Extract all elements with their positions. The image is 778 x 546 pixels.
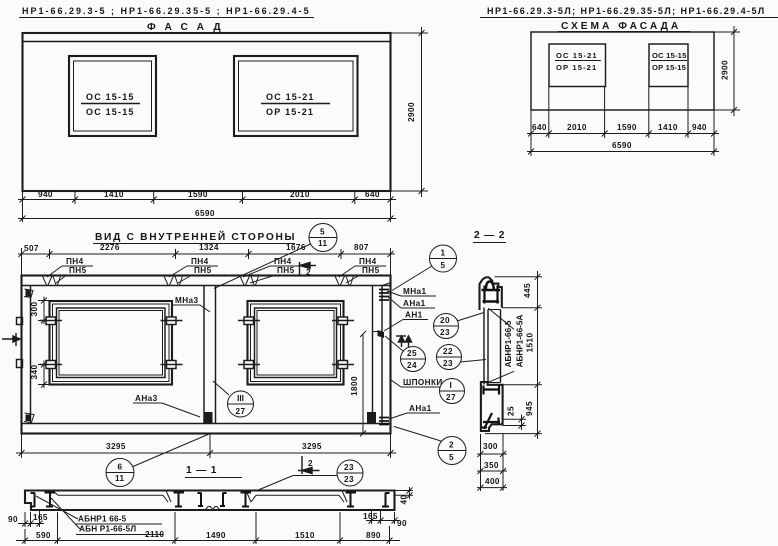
svg-text:640: 640 xyxy=(365,190,380,199)
svg-text:11: 11 xyxy=(318,239,328,248)
svg-text:МНа1: МНа1 xyxy=(403,287,426,296)
svg-text:1590: 1590 xyxy=(617,123,637,132)
svg-text:165: 165 xyxy=(33,513,48,522)
svg-text:ОС 15-15: ОС 15-15 xyxy=(86,92,135,102)
svg-text:945: 945 xyxy=(525,401,534,416)
svg-text:5: 5 xyxy=(441,261,446,270)
svg-text:23: 23 xyxy=(344,475,354,484)
svg-text:590: 590 xyxy=(36,531,51,540)
svg-text:400: 400 xyxy=(485,477,500,486)
svg-text:25: 25 xyxy=(507,406,516,416)
svg-text:НР1-66.29.3-5Л; НР1-66.29.35-5: НР1-66.29.3-5Л; НР1-66.29.35-5Л; НР1-66.… xyxy=(487,6,766,16)
svg-text:5: 5 xyxy=(320,228,325,237)
svg-text:АБНР1-66-5А: АБНР1-66-5А xyxy=(516,315,525,368)
svg-text:АНа3: АНа3 xyxy=(135,394,158,403)
svg-text:300: 300 xyxy=(30,302,39,317)
svg-text:25: 25 xyxy=(407,349,417,358)
svg-text:ФАСАД: ФАСАД xyxy=(147,22,230,33)
svg-text:АБНР1 66-5: АБНР1 66-5 xyxy=(78,515,127,524)
svg-text:24: 24 xyxy=(407,361,417,370)
svg-text:6590: 6590 xyxy=(612,141,632,150)
svg-text:ПН4: ПН4 xyxy=(191,257,209,266)
svg-text:2: 2 xyxy=(306,268,311,277)
svg-text:2: 2 xyxy=(449,441,454,450)
svg-text:ПН4: ПН4 xyxy=(359,257,377,266)
svg-text:1324: 1324 xyxy=(199,243,219,252)
svg-text:3295: 3295 xyxy=(302,442,322,451)
svg-text:1510: 1510 xyxy=(295,531,315,540)
svg-text:ПН5: ПН5 xyxy=(277,266,295,275)
svg-text:445: 445 xyxy=(523,283,532,298)
svg-text:1: 1 xyxy=(441,249,446,258)
svg-text:27: 27 xyxy=(446,393,456,402)
svg-text:2010: 2010 xyxy=(567,123,587,132)
svg-text:МНа3: МНа3 xyxy=(175,296,198,305)
svg-text:1410: 1410 xyxy=(658,123,678,132)
svg-text:ВИД С ВНУТРЕННЕЙ СТОРОНЫ: ВИД С ВНУТРЕННЕЙ СТОРОНЫ xyxy=(95,230,296,243)
svg-text:27: 27 xyxy=(236,407,246,416)
svg-text:940: 940 xyxy=(38,190,53,199)
svg-text:40: 40 xyxy=(400,495,409,505)
svg-text:22: 22 xyxy=(443,347,453,356)
svg-text:НР1-66.29.3-5 ; НР1-66.29.35-5: НР1-66.29.3-5 ; НР1-66.29.35-5 ; НР1-66.… xyxy=(22,6,311,16)
svg-text:2900: 2900 xyxy=(407,102,416,122)
svg-text:ПН5: ПН5 xyxy=(194,266,212,275)
svg-text:ОС 15-21: ОС 15-21 xyxy=(556,51,598,60)
svg-text:90: 90 xyxy=(8,515,18,524)
svg-text:III: III xyxy=(237,394,244,403)
svg-text:СХЕМА ФАСАДА: СХЕМА ФАСАДА xyxy=(561,21,681,32)
svg-text:ОР 15-21: ОР 15-21 xyxy=(556,63,597,72)
svg-text:940: 940 xyxy=(692,123,707,132)
svg-text:I: I xyxy=(450,381,453,390)
svg-text:АН1: АН1 xyxy=(405,311,423,320)
svg-text:ОС 15-15: ОС 15-15 xyxy=(86,107,135,117)
svg-text:340: 340 xyxy=(30,365,39,380)
svg-text:640: 640 xyxy=(532,123,547,132)
svg-text:ШПОНКИ: ШПОНКИ xyxy=(403,378,443,387)
svg-text:20: 20 xyxy=(440,316,450,325)
svg-text:1490: 1490 xyxy=(206,531,226,540)
svg-text:ПН5: ПН5 xyxy=(362,266,380,275)
svg-text:890: 890 xyxy=(366,531,381,540)
svg-text:2: 2 xyxy=(308,459,313,468)
svg-text:1800: 1800 xyxy=(350,376,359,396)
svg-text:90: 90 xyxy=(397,519,407,528)
svg-text:507: 507 xyxy=(24,244,39,253)
svg-text:2010: 2010 xyxy=(290,190,310,199)
svg-text:АБН Р1-66-5Л: АБН Р1-66-5Л xyxy=(79,525,136,534)
svg-text:ПН5: ПН5 xyxy=(69,266,87,275)
svg-text:23: 23 xyxy=(443,359,453,368)
svg-text:2900: 2900 xyxy=(721,60,730,80)
svg-text:1590: 1590 xyxy=(188,190,208,199)
svg-text:1410: 1410 xyxy=(104,190,124,199)
svg-text:23: 23 xyxy=(344,463,354,472)
svg-text:1 — 1: 1 — 1 xyxy=(186,465,217,476)
svg-text:АБНР1-66-5: АБНР1-66-5 xyxy=(504,320,513,367)
svg-text:2 — 2: 2 — 2 xyxy=(474,230,505,241)
svg-text:ОР 15-15: ОР 15-15 xyxy=(652,63,687,72)
svg-text:АНа1: АНа1 xyxy=(403,299,426,308)
svg-text:ПН4: ПН4 xyxy=(274,257,292,266)
svg-text:ПН4: ПН4 xyxy=(66,257,84,266)
svg-text:807: 807 xyxy=(354,243,369,252)
svg-text:АНа1: АНа1 xyxy=(409,404,432,413)
svg-text:350: 350 xyxy=(484,461,499,470)
svg-text:2276: 2276 xyxy=(100,243,120,252)
svg-text:ОС 15-21: ОС 15-21 xyxy=(266,92,315,102)
svg-text:ОР 15-21: ОР 15-21 xyxy=(266,107,314,117)
svg-text:23: 23 xyxy=(440,328,450,337)
svg-text:ОС 15-15: ОС 15-15 xyxy=(652,51,687,60)
svg-text:6590: 6590 xyxy=(195,209,215,218)
svg-text:165: 165 xyxy=(363,512,378,521)
svg-text:5: 5 xyxy=(449,453,454,462)
svg-text:3295: 3295 xyxy=(106,442,126,451)
svg-text:1510: 1510 xyxy=(526,333,535,353)
svg-text:11: 11 xyxy=(115,474,125,483)
svg-text:6: 6 xyxy=(118,463,123,472)
svg-text:2110: 2110 xyxy=(145,530,164,539)
svg-text:300: 300 xyxy=(483,442,498,451)
